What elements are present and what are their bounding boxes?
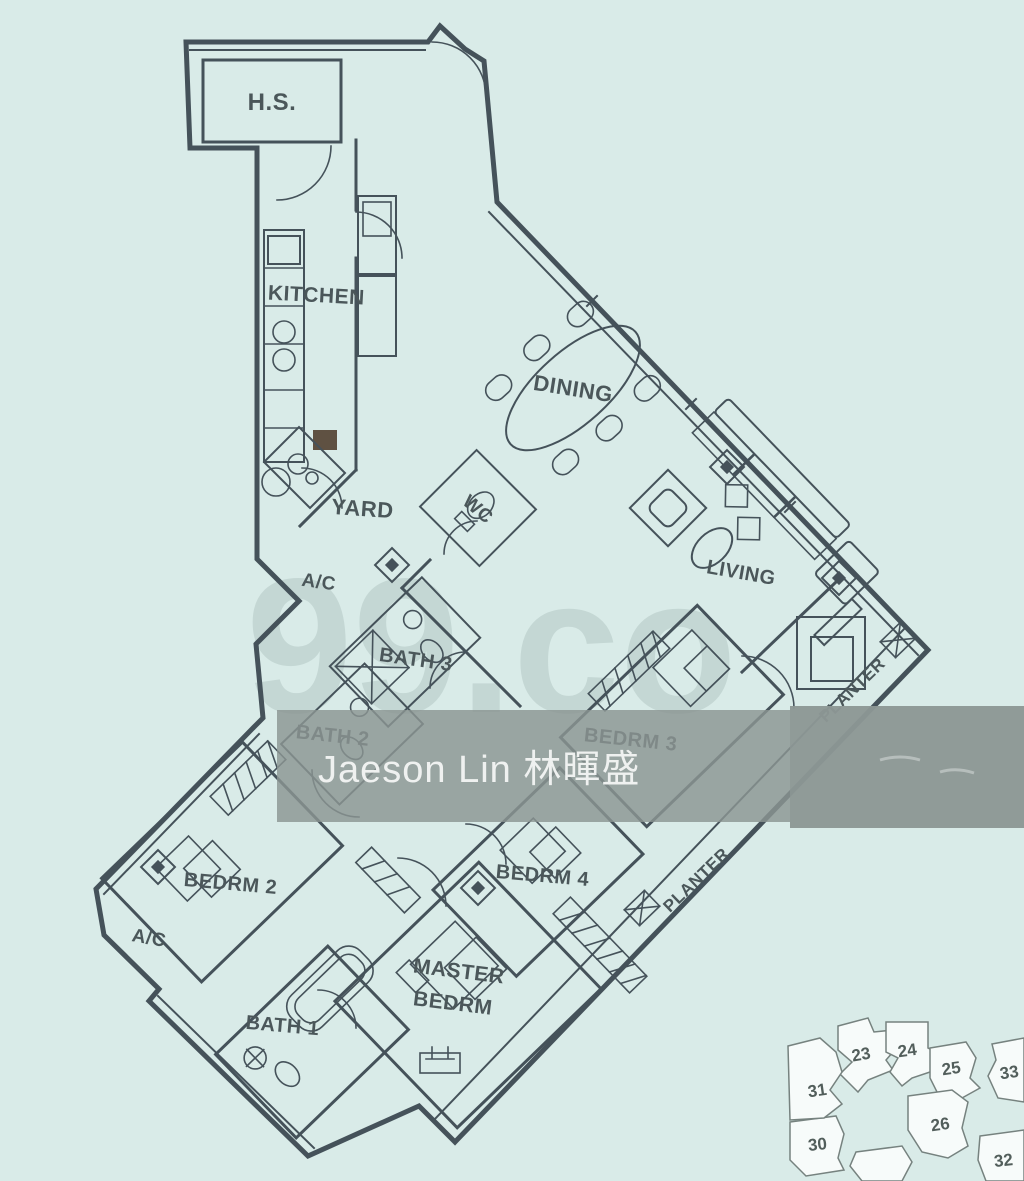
keyplan-building-unlabeled (850, 1146, 912, 1181)
keyplan-unit-23: 23 (850, 1044, 872, 1066)
keyplan-building-31 (788, 1038, 842, 1120)
keyplan-unit-26: 26 (930, 1114, 951, 1135)
stove-icon (313, 430, 337, 450)
room-label-hs: H.S. (248, 89, 297, 116)
keyplan-unit-30: 30 (807, 1134, 828, 1155)
keyplan-unit-31: 31 (807, 1080, 828, 1101)
room-label-yard: YARD (331, 494, 395, 523)
agent-watermark-text: Jaeson Lin 林暉盛 (318, 749, 640, 791)
keyplan-unit-25: 25 (941, 1058, 962, 1079)
keyplan-unit-32: 32 (993, 1150, 1014, 1171)
keyplan-unit-24: 24 (897, 1040, 919, 1062)
agent-watermark-band: Jaeson Lin 林暉盛 (277, 706, 1024, 828)
floorplan-image: 99.co (0, 0, 1024, 1181)
keyplan-unit-33: 33 (999, 1062, 1020, 1083)
